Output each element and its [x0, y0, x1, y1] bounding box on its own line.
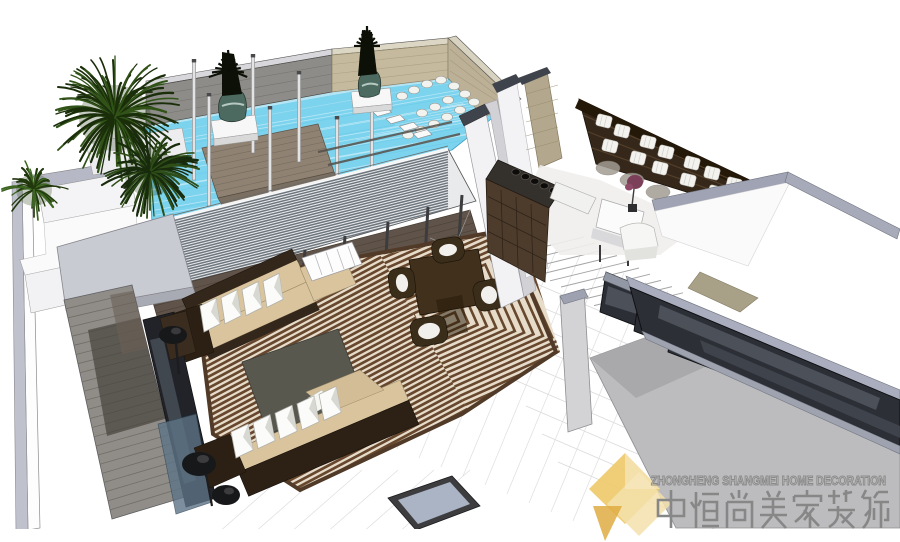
svg-text:ZHONGHENG SHANGMEI HOME DECORA: ZHONGHENG SHANGMEI HOME DECORATION: [651, 474, 886, 488]
